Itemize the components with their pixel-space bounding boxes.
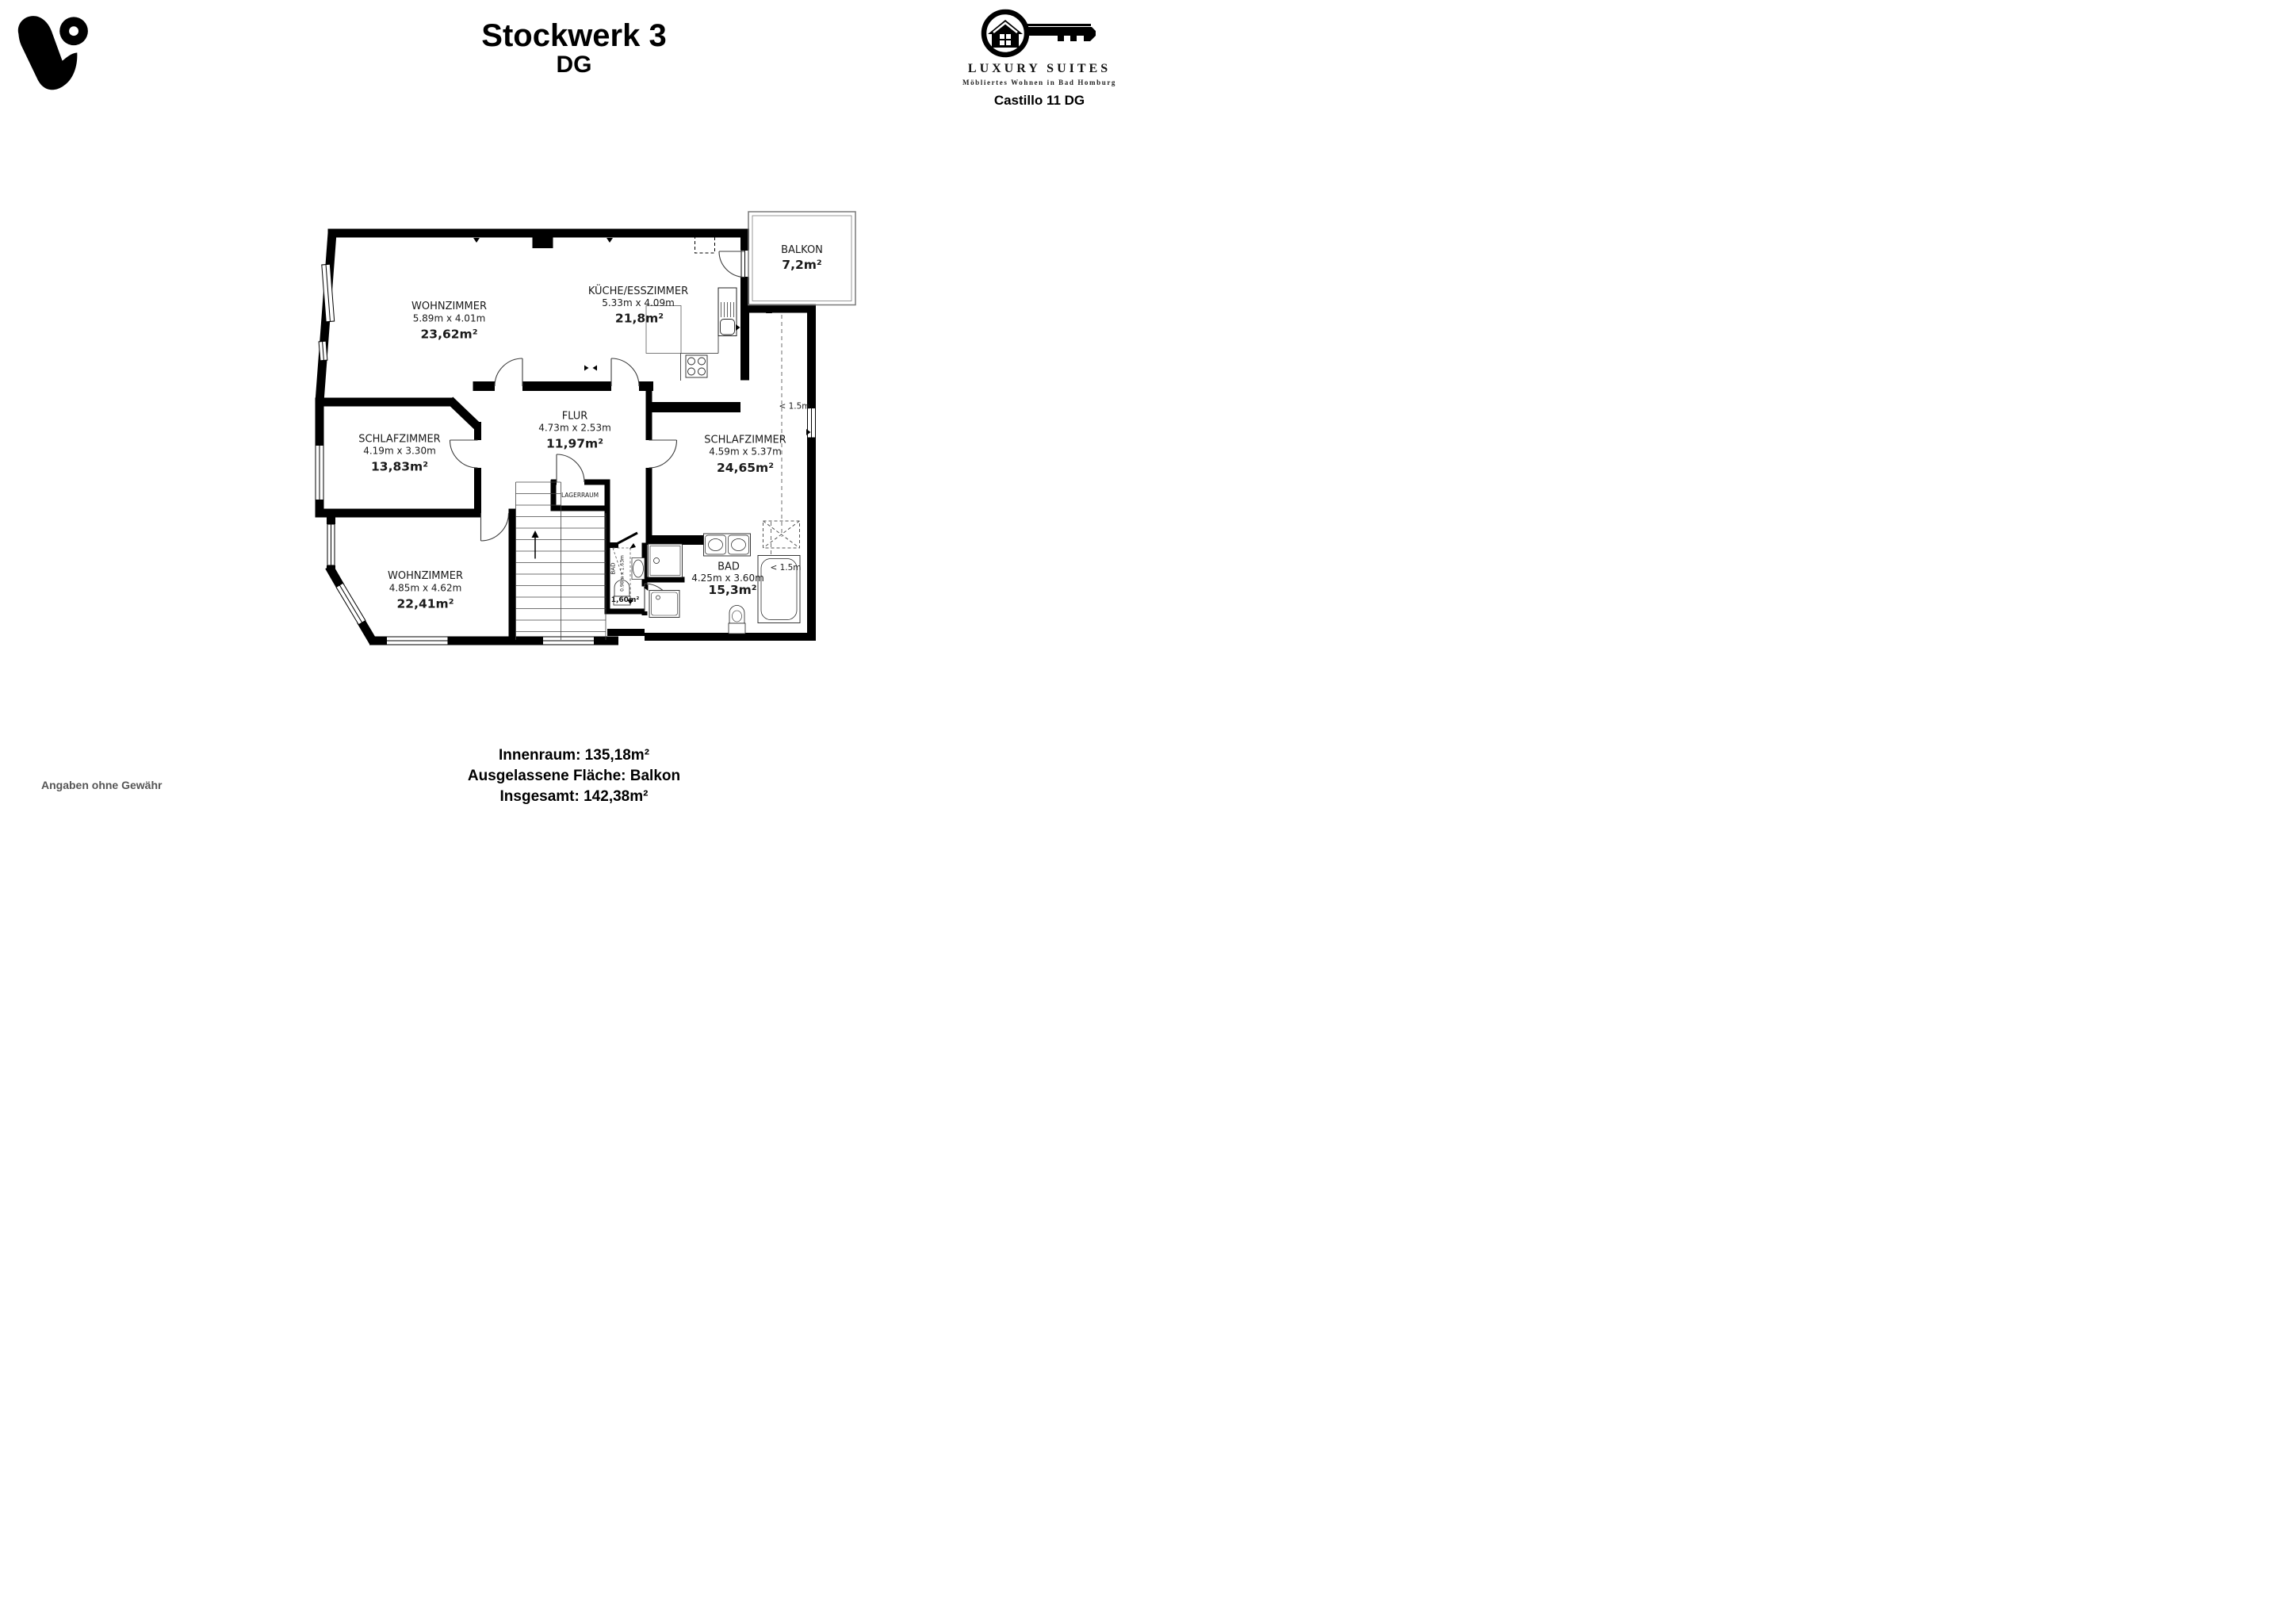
room-dims-schlafzimmer-links: 4.19m x 3.30m [363,446,436,457]
room-dims-bad-klein: 0.98m x 1.63m [620,555,626,592]
floorplan-page: { "page": { "title": "Stockwerk 3", "sub… [0,0,1148,812]
double-washbasin [704,534,751,556]
room-dims-wohnzimmer-unten: 4.85m x 4.62m [389,583,462,594]
summary-innenraum: Innenraum: 135,18m² [0,745,1148,766]
summary-ausgelassene: Ausgelassene Fläche: Balkon [0,766,1148,787]
stairs-up-arrow [532,530,539,559]
brand-name: LUXURY SUITES [968,62,1111,76]
house-key-icon [980,8,1099,60]
room-label-wohnzimmer-top: WOHNZIMMER [411,301,487,312]
room-area-schlafzimmer-rechts: 24,65m² [717,461,774,475]
height-note-schlafzimmer: < 1.5m [779,402,809,412]
room-label-balkon: BALKON [781,244,823,256]
brand-block: LUXURY SUITES Möbliertes Wohnen in Bad H… [948,8,1131,109]
room-area-bad-klein: 1,60m² [611,596,640,604]
kitchen-counter [681,288,737,381]
room-dims-wohnzimmer-top: 5.89m x 4.01m [413,313,486,324]
room-label-kueche: KÜCHE/ESSZIMMER [588,284,688,297]
room-area-wohnzimmer-top: 23,62m² [421,327,478,342]
mini-bad-washbasin [632,558,645,580]
room-label-wohnzimmer-unten: WOHNZIMMER [388,570,463,582]
room-area-balkon: 7,2m² [782,258,821,272]
room-area-wohnzimmer-unten: 22,41m² [397,597,454,611]
brand-tagline: Möbliertes Wohnen in Bad Homburg [962,79,1116,86]
summary-insgesamt: Insgesamt: 142,38m² [0,787,1148,807]
room-label-lagerraum: LAGERRAUM [561,492,599,499]
shower [649,544,683,577]
brand-property: Castillo 11 DG [994,93,1085,109]
bad-sink [649,591,679,618]
toilet-bad [729,606,745,634]
room-label-bad-klein: BAD [610,563,617,575]
room-area-kueche: 21,8m² [615,312,664,326]
stove [686,355,707,377]
room-dims-kueche: 5.33m x 4.09m [602,297,675,308]
room-label-bad: BAD [717,561,740,573]
room-label-flur: FLUR [562,411,588,423]
disclaimer-text: Angaben ohne Gewähr [41,779,162,791]
room-label-schlafzimmer-links: SCHLAFZIMMER [358,434,440,446]
room-area-bad: 15,3m² [708,583,756,597]
room-dims-bad: 4.25m x 3.60m [691,573,764,584]
room-label-schlafzimmer-rechts: SCHLAFZIMMER [704,435,786,446]
height-note-bad: < 1.5m [770,563,801,573]
room-area-flur: 11,97m² [546,437,603,451]
summary-block: Innenraum: 135,18m² Ausgelassene Fläche:… [0,745,1148,808]
room-area-schlafzimmer-links: 13,83m² [371,460,428,474]
room-dims-schlafzimmer-rechts: 4.59m x 5.37m [709,446,782,458]
room-dims-flur: 4.73m x 2.53m [538,423,611,434]
floor-plan: WOHNZIMMER 5.89m x 4.01m 23,62m² KÜCHE/E… [313,200,864,680]
